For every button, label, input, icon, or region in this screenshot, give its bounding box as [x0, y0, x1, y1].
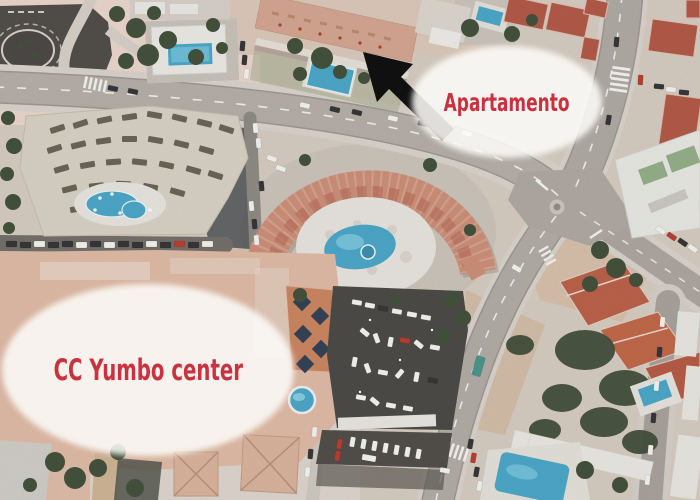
aerial-map-screenshot: Apartamento CC Yumbo center: [0, 0, 700, 500]
apartamento-label: Apartamento: [444, 88, 570, 117]
apartamento-annotation: Apartamento: [412, 46, 602, 158]
yumbo-label: CC Yumbo center: [53, 353, 242, 387]
yumbo-annotation: CC Yumbo center: [2, 284, 294, 456]
